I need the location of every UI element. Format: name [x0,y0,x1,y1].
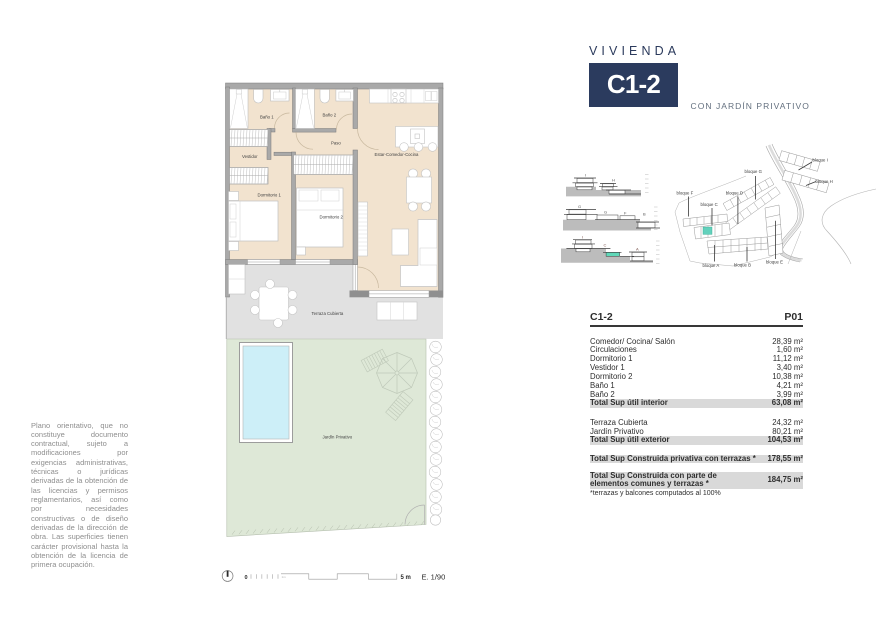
svg-text:bloque B: bloque B [734,263,751,268]
svg-text:bloque G: bloque G [745,169,763,174]
svg-text:bloque A: bloque A [703,263,720,268]
svg-text:E. 1/90: E. 1/90 [422,573,446,582]
svg-text:Dormitorio 1: Dormitorio 1 [258,192,282,197]
svg-text:I: I [585,173,586,178]
svg-text:bloque I: bloque I [813,158,828,163]
svg-text:C: C [604,242,607,247]
svg-text:Paso: Paso [331,141,341,146]
svg-text:Baño 2: Baño 2 [323,113,337,118]
svg-text:Estar-Comedor-Cocina: Estar-Comedor-Cocina [375,152,420,157]
svg-text:B: B [643,212,646,217]
svg-text:bloque C: bloque C [701,202,718,207]
svg-text:0: 0 [245,575,248,581]
svg-text:Baño 1: Baño 1 [260,114,274,119]
svg-text:Jardín Privativo: Jardín Privativo [323,435,353,440]
svg-text:A: A [636,246,639,251]
svg-text:G: G [578,204,581,209]
svg-text:bloque H: bloque H [816,179,833,184]
svg-text:1m: 1m [282,575,287,579]
svg-text:G: G [604,210,607,215]
svg-text:Terraza Cubierta: Terraza Cubierta [312,311,344,316]
svg-text:H: H [612,178,615,183]
svg-text:Dormitorio 2: Dormitorio 2 [320,215,344,220]
svg-text:bloque F: bloque F [677,190,694,195]
svg-text:5 m: 5 m [401,575,411,581]
svg-text:Vestidor: Vestidor [242,154,258,159]
svg-text:bloque D: bloque D [726,190,743,195]
svg-text:I: I [582,234,583,239]
svg-text:bloque E: bloque E [766,259,783,264]
svg-text:F: F [624,211,627,216]
